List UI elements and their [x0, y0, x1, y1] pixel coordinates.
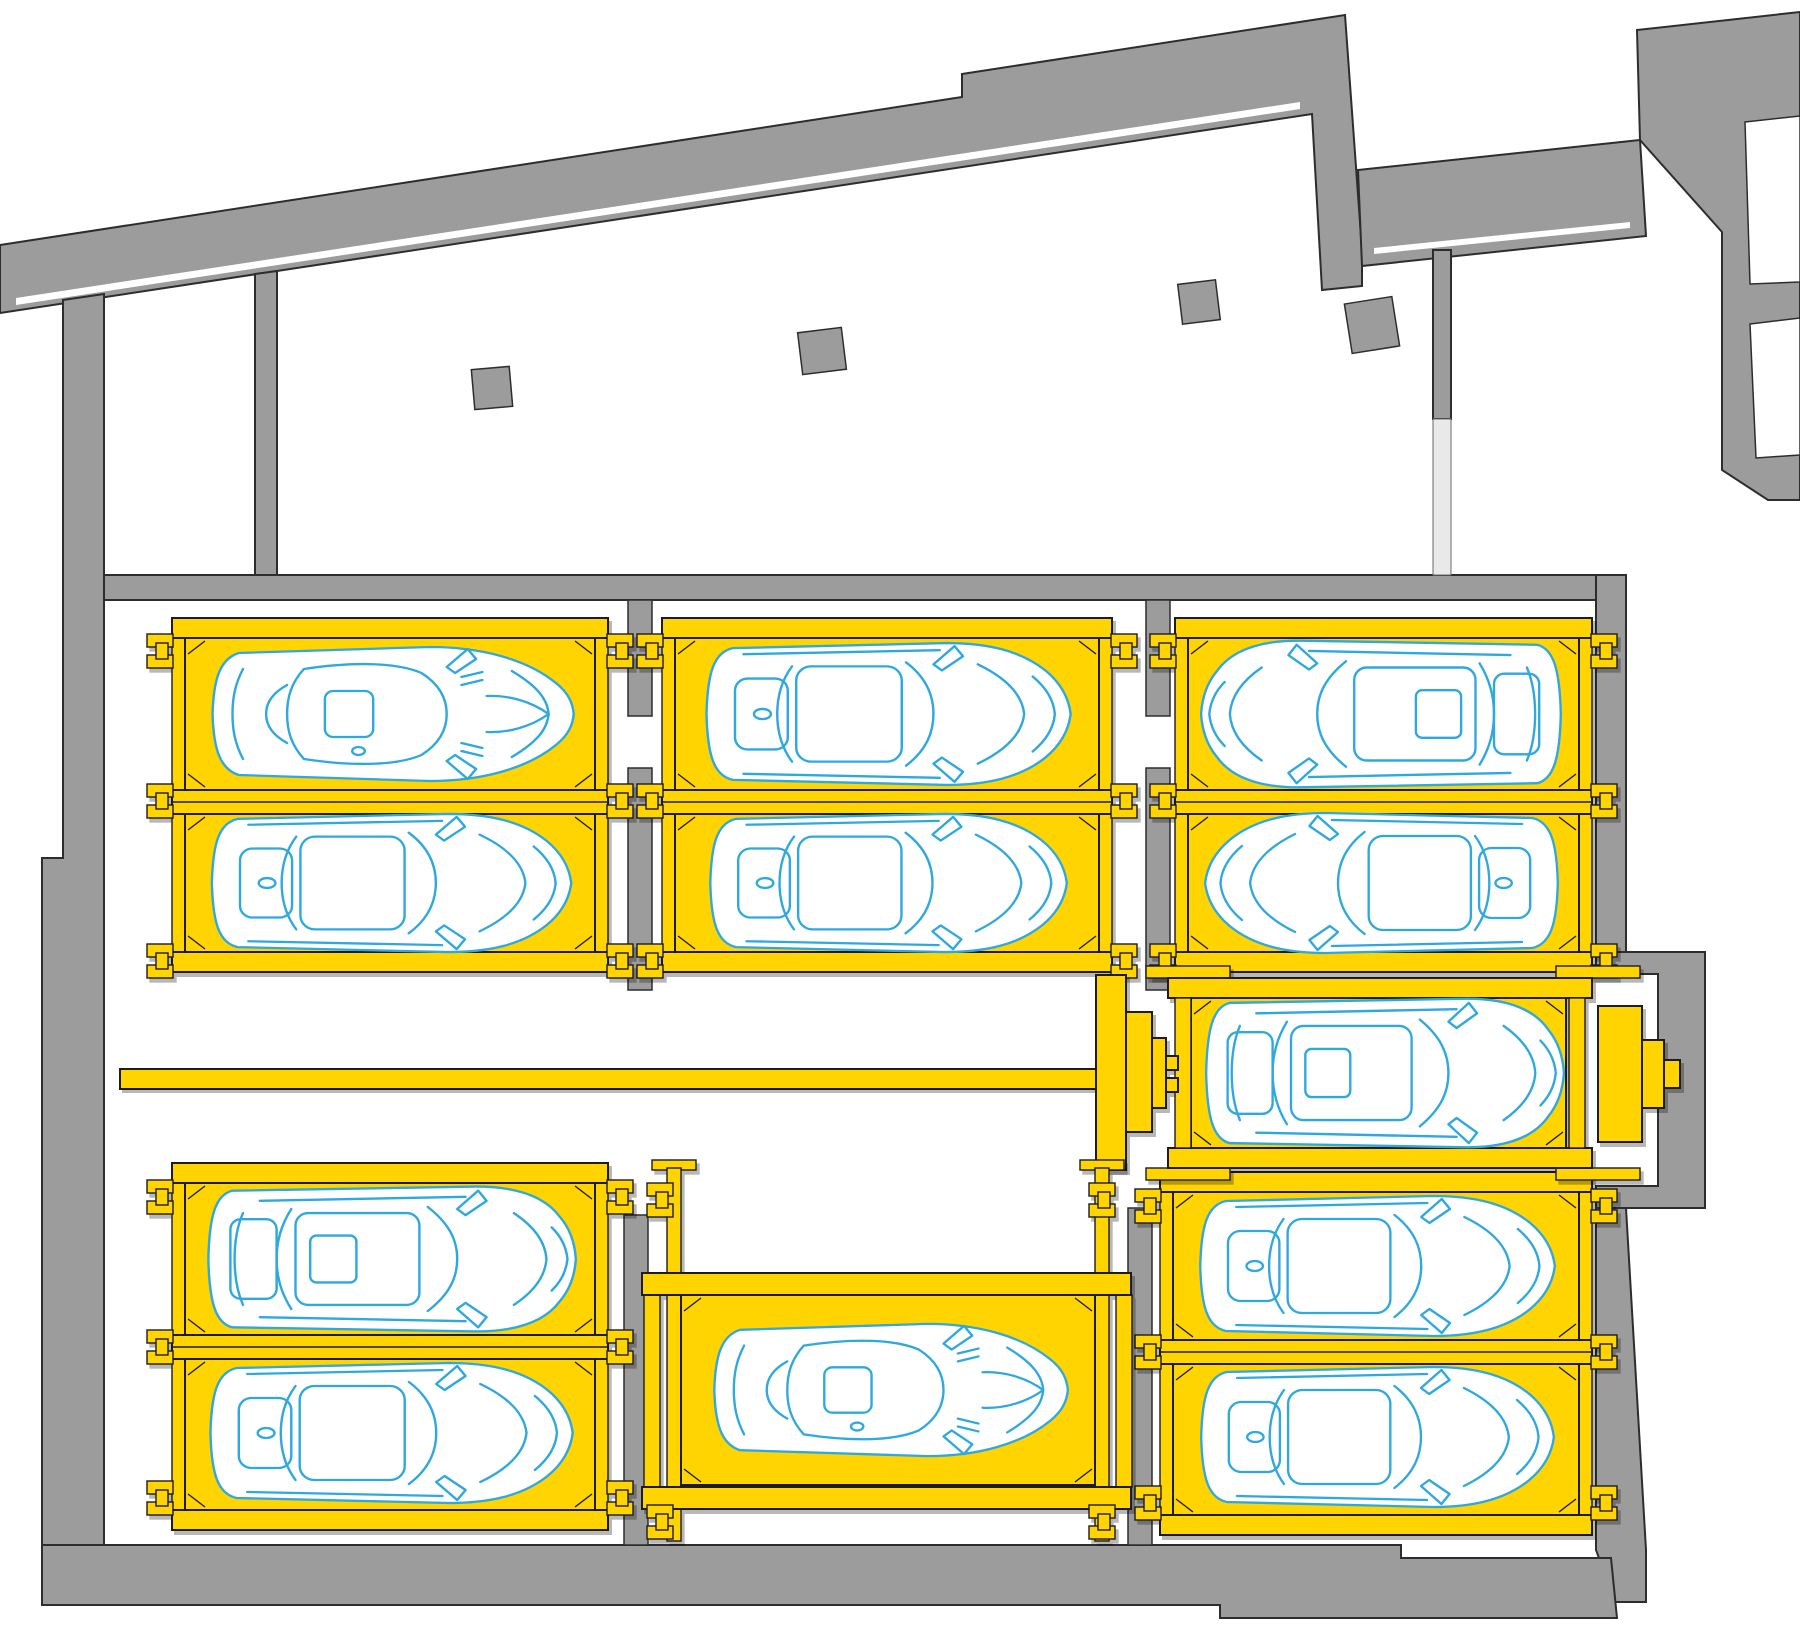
cross-bar-bottom — [1175, 952, 1592, 972]
car-top-view — [710, 814, 1067, 952]
concrete-column — [471, 366, 512, 409]
car-top-view — [707, 643, 1071, 785]
cross-bar-bottom — [1160, 1515, 1592, 1535]
shuttle-drive-right — [1664, 1060, 1680, 1088]
car-top-view — [1205, 813, 1558, 953]
niche-east-wall — [255, 271, 277, 600]
car-top-view — [1200, 1196, 1555, 1336]
door-opening — [1433, 419, 1451, 575]
cross-bar-bottom — [172, 952, 608, 972]
car-top-view — [210, 1363, 572, 1503]
pallet-clamp — [646, 793, 658, 809]
concrete-column — [1344, 297, 1399, 354]
cross-bar-top — [662, 618, 1112, 638]
pallet-clamp — [1098, 1514, 1110, 1530]
pallet-clamp — [156, 1189, 168, 1205]
pallet-clamp — [616, 953, 628, 969]
pallet-clamp — [1600, 1495, 1612, 1511]
perimeter-band-northwest — [0, 15, 1362, 313]
door-head-wall — [1433, 250, 1451, 419]
car-top-view — [714, 1324, 1068, 1456]
pallet-clamp — [616, 1189, 628, 1205]
pallet-clamp — [1120, 953, 1132, 969]
shuttle-drive-left — [1152, 1038, 1166, 1108]
cross-bar-top — [1168, 978, 1592, 998]
pallet-clamp — [616, 643, 628, 659]
floor-plan-stage — [0, 0, 1800, 1641]
pallet-clamp — [1144, 1198, 1156, 1214]
end-plate — [1146, 966, 1230, 978]
pallet-clamp — [1159, 643, 1171, 659]
pallet-clamp — [1600, 643, 1612, 659]
end-plate — [1146, 1168, 1230, 1180]
shuttle-drive-right — [1598, 1006, 1642, 1142]
shuttle-drive-right — [1642, 1040, 1664, 1108]
car-top-view — [212, 814, 571, 952]
car-top-view — [208, 1187, 575, 1332]
cross-bar-top — [172, 1163, 608, 1183]
pallet-clamp — [156, 953, 168, 969]
pallet-clamp — [156, 1490, 168, 1506]
concrete-column — [1178, 280, 1221, 324]
cross-bar-top — [1175, 618, 1592, 638]
shuttle-drive-left — [1166, 1078, 1178, 1092]
pallet-clamp — [1144, 1495, 1156, 1511]
transfer-rail — [120, 1069, 1104, 1089]
parking-floor-plan — [0, 0, 1800, 1641]
room-northeast-upper — [1745, 116, 1800, 284]
cross-bar — [642, 1273, 1131, 1295]
pallet-clamp — [156, 1339, 168, 1355]
room-northeast-lower — [1750, 318, 1800, 458]
car-top-view — [1206, 999, 1564, 1148]
cross-bar-bottom — [1168, 1148, 1592, 1168]
end-plate — [1556, 1168, 1640, 1180]
pallet-clamp — [1144, 1344, 1156, 1360]
pallet-clamp — [656, 1514, 668, 1530]
concrete-column — [798, 327, 847, 374]
cross-bar-top — [172, 618, 608, 638]
east-wall-lower — [1596, 1208, 1646, 1602]
pallet-clamp — [646, 643, 658, 659]
car-top-view — [1201, 641, 1561, 788]
south-wall — [42, 1545, 1617, 1618]
pallet-clamp — [1120, 643, 1132, 659]
pallet-clamp — [1098, 1192, 1110, 1208]
pallet-clamp — [156, 643, 168, 659]
hall-north-wall — [104, 575, 1596, 600]
car-top-view — [213, 647, 574, 781]
pallet-rail-left — [1175, 998, 1191, 1148]
cross-bar — [642, 1487, 1131, 1509]
end-plate — [1556, 966, 1640, 978]
pallet-clamp — [1120, 793, 1132, 809]
pallet-clamp — [616, 793, 628, 809]
pallet-clamp — [1600, 1344, 1612, 1360]
pallet-clamp — [646, 953, 658, 969]
east-wall-upper — [1596, 575, 1626, 952]
shuttle-drive-left — [1096, 975, 1126, 1170]
west-wall — [42, 294, 104, 1605]
frame-post — [1095, 1168, 1109, 1541]
pallet-clamp — [616, 1339, 628, 1355]
pallet-clamp — [656, 1192, 668, 1208]
cross-bar-bottom — [172, 1510, 608, 1530]
pallet-clamp — [1600, 1198, 1612, 1214]
pallet-rail-right — [1569, 998, 1585, 1148]
frame-post — [667, 1168, 681, 1541]
pallet-clamp — [1159, 793, 1171, 809]
car-top-view — [1201, 1367, 1554, 1507]
pallet-clamp — [1600, 793, 1612, 809]
shuttle-drive-left — [1166, 1056, 1178, 1070]
pallet-clamp — [156, 793, 168, 809]
pallet-clamp — [616, 1490, 628, 1506]
side-plate — [644, 1295, 660, 1487]
band-nw-inner-face — [16, 102, 1300, 305]
cross-bar-bottom — [662, 952, 1112, 972]
shuttle-drive-left — [1126, 1012, 1152, 1132]
side-plate — [1116, 1295, 1132, 1487]
